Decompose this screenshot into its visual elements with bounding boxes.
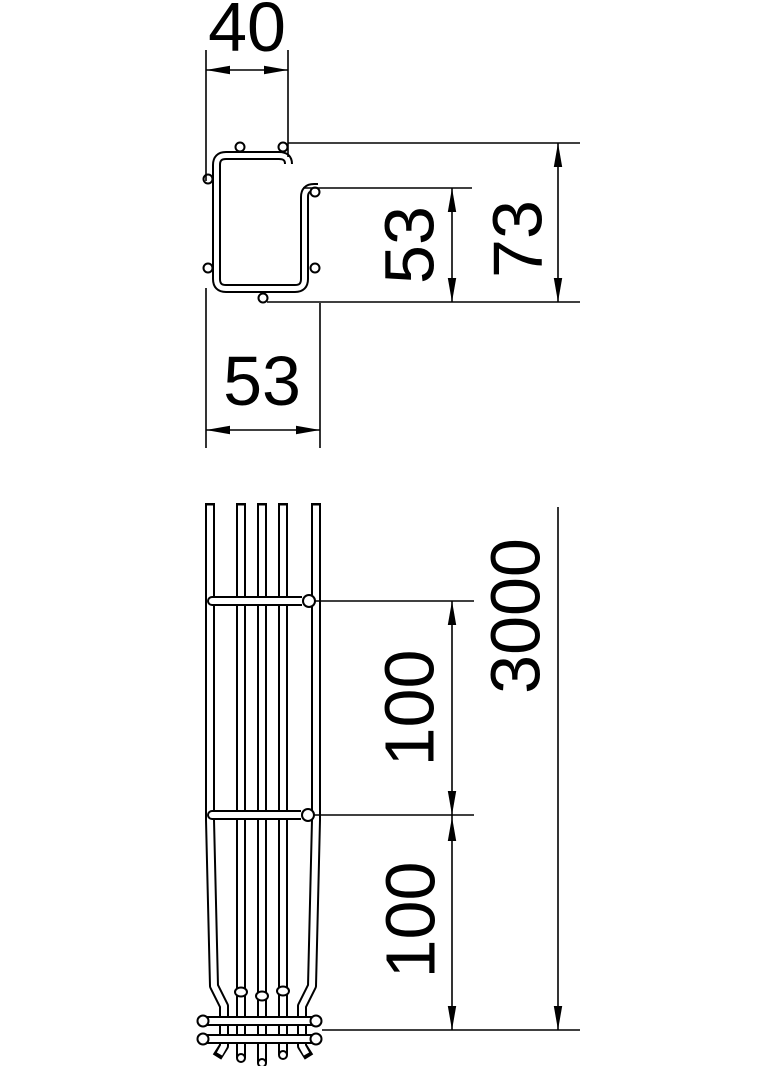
- rung-end-wire: [198, 1016, 209, 1027]
- dimension-rung-spacing-upper: 100: [314, 601, 474, 815]
- dimension-label-100-lower: 100: [372, 862, 450, 979]
- rail-tip-core: [280, 1052, 286, 1058]
- rail-tip-core: [238, 1055, 244, 1061]
- dimension-rung-spacing-lower: 100: [322, 815, 580, 1030]
- arrowhead-down: [448, 791, 456, 815]
- wire-cross-section: [279, 143, 288, 152]
- rung-end-wire: [198, 1034, 209, 1045]
- arrowhead-down: [554, 278, 562, 302]
- wire-cross-section: [204, 264, 213, 273]
- dimension-label-53-vertical: 53: [371, 206, 449, 284]
- rung-end-wire: [311, 1016, 322, 1027]
- dimension-outer-width: 53: [206, 288, 320, 448]
- arrowhead-up: [448, 188, 456, 212]
- technical-drawing: 40 53 73 53: [0, 0, 784, 1066]
- wire-cross-section: [236, 143, 245, 152]
- wire-cross-section: [259, 294, 268, 303]
- arrowhead-right: [296, 426, 320, 434]
- end-rung-lower: [198, 1034, 322, 1045]
- profile-sheet-core: [217, 156, 319, 289]
- rung-end-wire: [311, 1034, 322, 1045]
- dimension-label-53-horizontal: 53: [223, 342, 301, 420]
- arrowhead-up: [448, 817, 456, 841]
- wire-cross-section: [204, 175, 213, 184]
- rung-cap-core: [209, 598, 215, 604]
- arrowhead-down: [448, 278, 456, 302]
- arrowhead-left: [206, 66, 230, 74]
- dimension-label-73: 73: [479, 200, 557, 278]
- arrowhead-down: [554, 1006, 562, 1030]
- wire-cross-section: [311, 188, 320, 197]
- rung-cap-core: [209, 812, 215, 818]
- dimension-label-40: 40: [208, 0, 286, 66]
- arrowhead-up: [554, 143, 562, 167]
- side-view: [198, 503, 322, 1066]
- wire-cross-section: [311, 264, 320, 273]
- dimension-label-100-upper: 100: [371, 650, 449, 767]
- end-rung-upper: [198, 1016, 322, 1027]
- cross-section-view: [204, 143, 320, 303]
- rung-2: [207, 809, 314, 821]
- rung-1: [207, 595, 315, 607]
- rung-end-wire: [302, 809, 314, 821]
- arrowhead-right: [264, 66, 288, 74]
- drawing-canvas: 40 53 73 53: [0, 0, 784, 1066]
- wire-end-mark: [235, 988, 247, 997]
- arrowhead-left: [206, 426, 230, 434]
- rung-end-wire: [303, 595, 315, 607]
- rail-tip-core: [259, 1060, 265, 1066]
- dimension-total-length: 3000: [477, 507, 563, 1030]
- wire-end-mark: [256, 992, 268, 1001]
- dimension-label-3000: 3000: [477, 538, 555, 694]
- wire-end-mark: [277, 987, 289, 996]
- arrowhead-down: [448, 1006, 456, 1030]
- dimension-side-height: 53: [303, 188, 472, 302]
- arrowhead-up: [448, 601, 456, 625]
